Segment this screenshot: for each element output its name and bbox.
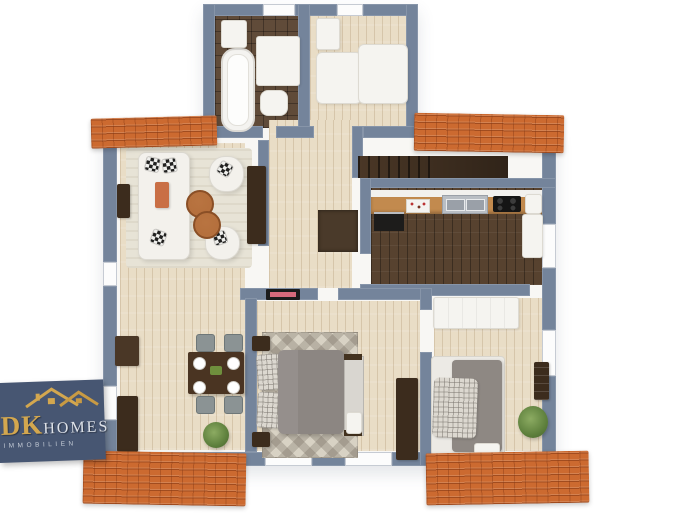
washbasin [221,20,247,48]
staircase-steps [358,156,436,178]
roof-bottom-right [426,451,590,506]
dining-sideboard [117,396,138,452]
floor-plan-render: DKHOMES IMMOBILIEN [0,0,693,520]
bedroom-wardrobe [396,378,418,460]
floor-opening [318,210,358,252]
roof-top-left [91,115,218,148]
bathroom-vanity [256,36,300,86]
sink-basin-right [466,199,485,211]
cooktop [493,196,521,212]
hallway-floor [269,120,352,288]
window-right-kitchen [542,224,556,268]
annex-window-top [263,4,295,16]
dining-plant [203,422,229,448]
logo-brand-primary: DK [0,409,44,440]
roof-top-right [414,113,565,154]
sofa-throw [155,182,169,208]
entry-wardrobe-2 [358,44,408,104]
annex-wall-bottom-mid [276,126,314,138]
plate-1 [193,357,206,370]
plate-4 [227,381,240,394]
entry-wardrobe [316,52,362,104]
annex-window-top-2 [337,4,363,16]
annex-wall-bottom-right [363,126,416,138]
logo-wordmark: DKHOMES [0,407,110,442]
nightstand-bottom [252,432,270,447]
kitchen-sink [442,195,488,214]
roof-bottom-left [83,451,247,507]
wall-bedroom-divider-a [420,288,432,310]
brand-logo: DKHOMES IMMOBILIEN [0,379,106,463]
living-wall-shelf [117,184,130,218]
outlet-panel [406,199,430,213]
dining-chair-1 [196,334,215,352]
coffee-table-2 [193,211,221,239]
wall-bedroom-top-b [338,288,422,300]
coffee-machine [525,194,542,214]
toilet [260,90,288,116]
wall-dining-bedroom [245,298,257,452]
sofa-pillow-1 [145,157,160,172]
logo-roofline-icon [23,383,100,410]
wall-picture [266,289,300,300]
bench-cushion [346,412,362,434]
wall-kitchen-left [360,178,371,254]
bathtub [221,48,255,132]
dining-chair-4 [224,396,243,414]
logo-brand-secondary: HOMES [43,418,110,437]
window-left-living [103,262,117,286]
plate-2 [227,357,240,370]
wall-kitchen-top [360,178,556,188]
double-bed-duvet [278,350,344,434]
small-bedroom-wall-shelf [534,362,549,400]
table-centerpiece [210,366,222,375]
wall-right-mid [542,268,556,330]
bench-end-top [344,354,362,360]
nightstand-top [252,336,270,351]
single-bed-pillow [432,377,478,438]
sink-basin-left [446,199,465,211]
plate-3 [193,381,206,394]
wall-picture-art [270,292,296,297]
tv-sideboard [247,166,266,244]
oven [374,212,404,231]
entry-cabinet [316,18,340,50]
kitchen-tall-cabinet [522,214,543,258]
small-bedroom-plant [518,406,548,438]
dining-wall-shelf [115,336,139,366]
sofa-pillow-2 [162,158,177,173]
dining-chair-3 [196,396,215,414]
dining-chair-2 [224,334,243,352]
small-bedroom-wardrobe [433,297,519,329]
annex-wall-left [203,4,215,132]
